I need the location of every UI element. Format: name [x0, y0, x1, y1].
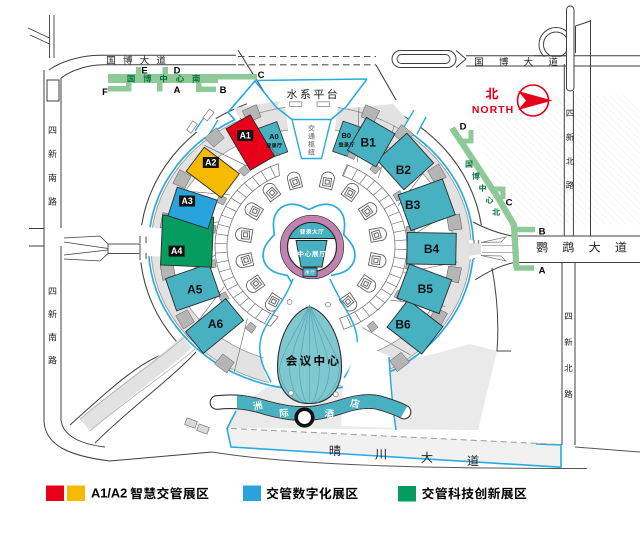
svg-text:NORTH: NORTH [472, 104, 514, 116]
svg-text:B3: B3 [405, 198, 421, 212]
svg-text:F: F [102, 87, 108, 98]
svg-text:A3: A3 [181, 196, 192, 206]
svg-text:A1: A1 [240, 131, 251, 141]
svg-text:A2: A2 [205, 158, 216, 168]
svg-text:C: C [506, 197, 513, 208]
svg-text:D: D [174, 65, 181, 76]
svg-text:A4: A4 [171, 246, 182, 256]
svg-text:B: B [539, 226, 546, 237]
svg-text:A: A [539, 265, 546, 276]
svg-text:E: E [141, 65, 147, 76]
svg-text:A6: A6 [208, 317, 224, 331]
svg-text:C: C [258, 70, 265, 81]
svg-text:B6: B6 [395, 318, 411, 332]
svg-text:A1/A2: A1/A2 [91, 486, 127, 501]
svg-text:B: B [220, 85, 227, 96]
svg-text:B2: B2 [396, 163, 412, 177]
svg-text:B0: B0 [342, 131, 352, 140]
svg-text:A5: A5 [187, 283, 203, 297]
svg-text:B5: B5 [418, 282, 434, 296]
svg-text:D: D [460, 121, 467, 132]
svg-text:B4: B4 [424, 242, 440, 256]
svg-text:B1: B1 [361, 136, 377, 150]
svg-text:A: A [174, 85, 181, 96]
svg-text:A0: A0 [269, 132, 279, 141]
